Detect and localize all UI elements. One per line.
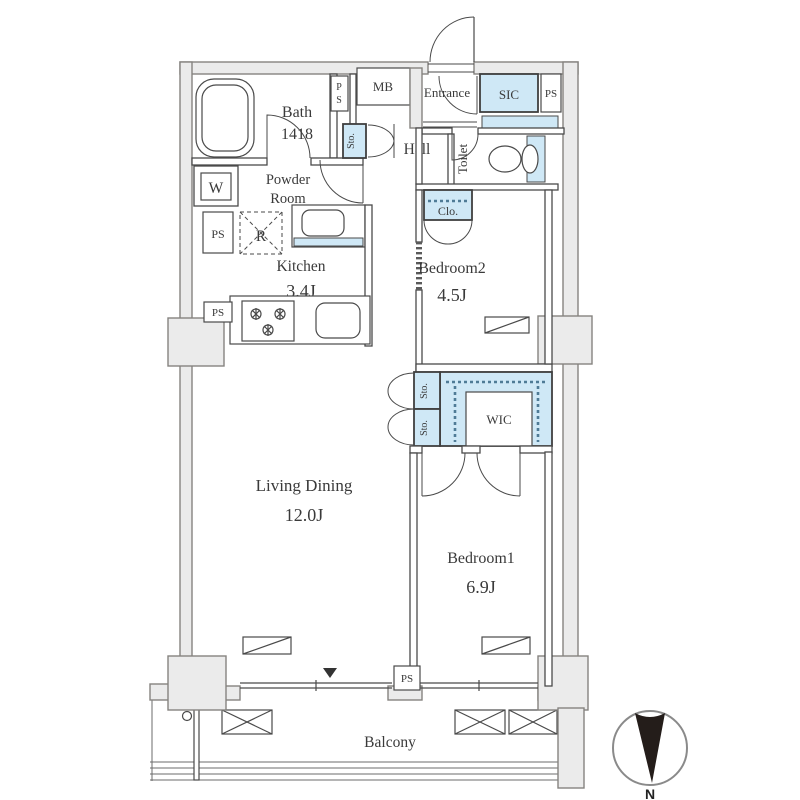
pillar-bottom-left <box>168 656 226 710</box>
kitchen-sink <box>316 303 360 338</box>
toilet-bowl <box>489 146 521 172</box>
closet-doors <box>424 220 472 244</box>
pillar-mid-left <box>168 318 224 366</box>
wic-door <box>477 453 520 496</box>
powder-room-door <box>320 160 363 203</box>
bedroom2-label: Bedroom2 <box>418 260 486 277</box>
pillar-bottom-right-ext <box>558 708 584 788</box>
bedroom1-area-label: 6.9J <box>466 577 496 597</box>
powder-room-label-1: Powder <box>266 172 310 188</box>
sto-label: Sto. <box>419 420 430 436</box>
sto-label: Sto. <box>419 383 430 399</box>
bedroom1-door <box>422 453 465 496</box>
bedroom1-label: Bedroom1 <box>447 550 515 567</box>
vanity-sink <box>302 210 344 236</box>
wall-bedroom2-bottom <box>416 364 552 372</box>
sto-label: Sto. <box>346 133 357 149</box>
wall-bedroom1-right <box>545 452 552 686</box>
ps-label: PS <box>211 227 224 241</box>
wall-ld-bedroom1 <box>410 453 417 686</box>
wall-toilet-top-a <box>422 128 452 134</box>
toilet-label: Toilet <box>455 144 470 175</box>
balcony: Balcony <box>150 700 558 781</box>
floor-plan: Balcony Bath 1418 P S MB S <box>0 0 800 800</box>
wic-area: WIC Sto. Sto. <box>388 372 552 446</box>
living-dining-label: Living Dining <box>256 476 353 495</box>
entrance-label: Entrance <box>424 85 470 100</box>
washer-label: W <box>209 180 224 197</box>
equipment-pad <box>455 710 505 734</box>
storage-bifold-doors <box>368 125 394 157</box>
mb-label: MB <box>373 79 394 94</box>
wall-entrance-left <box>410 68 422 128</box>
balcony-label: Balcony <box>364 734 416 751</box>
wall-stub-left <box>150 684 170 700</box>
wall-left <box>180 62 192 700</box>
wic-label: WIC <box>486 412 511 427</box>
wall-bedroom2-right <box>545 190 552 364</box>
wall-toilet-top-b <box>478 128 564 134</box>
floor-plan-svg: Balcony Bath 1418 P S MB S <box>0 0 800 800</box>
toilet-tank <box>522 145 538 173</box>
wall-toilet-left <box>448 134 454 190</box>
ps-label: PS <box>545 88 557 100</box>
bath-size-label: 1418 <box>281 126 313 143</box>
front-door-swing <box>430 17 474 62</box>
ac-unit-bedroom1 <box>482 637 530 654</box>
storage-bifold-doors <box>388 373 414 445</box>
vanity-front <box>294 238 363 246</box>
wall-bedroom2-left-b <box>416 290 422 372</box>
wall-hall-top <box>350 74 356 124</box>
wall-bath-bottom-a <box>192 158 267 165</box>
refrigerator-space: R <box>240 212 282 254</box>
living-dining-area-label: 12.0J <box>285 505 324 525</box>
wall-right <box>563 62 578 700</box>
bathtub-inner <box>202 85 248 151</box>
bedroom1: Bedroom1 6.9J <box>410 446 552 686</box>
ps-label: PS <box>212 307 224 319</box>
clo-label: Clo. <box>438 204 458 218</box>
bathroom: Bath 1418 P S <box>192 74 363 165</box>
powder-room: W Powder Room PS R <box>194 160 365 254</box>
drain-cap <box>183 712 192 721</box>
ps-label: PS <box>401 673 413 685</box>
equipment-pad <box>509 710 557 734</box>
toilet-room: Toilet <box>416 128 564 190</box>
closet-bedroom2: Clo. <box>424 190 472 244</box>
bath-label: Bath <box>282 104 312 121</box>
bedroom2-area-label: 4.5J <box>437 285 467 305</box>
ps-label-p: P <box>336 82 342 93</box>
ps-label-s: S <box>336 95 342 106</box>
compass: N <box>613 711 687 800</box>
north-label: N <box>645 786 655 800</box>
ac-unit-living <box>243 637 291 654</box>
wall-bath-bottom-b <box>311 158 363 165</box>
wall-bedroom1-top-b <box>462 446 480 453</box>
ac-unit-bedroom2 <box>485 317 529 333</box>
sic-label: SIC <box>499 87 519 102</box>
refrigerator-label: R <box>256 228 267 245</box>
equipment-pad <box>222 710 272 734</box>
wall-bedroom2-left-upper <box>416 128 422 184</box>
wall-bedroom2-left-a <box>416 190 422 242</box>
kitchen-label: Kitchen <box>276 258 325 275</box>
entry-marker-triangle <box>323 668 337 678</box>
wall-bedroom1-top-a <box>410 446 422 453</box>
living-dining: Living Dining 12.0J <box>243 476 353 678</box>
drain-pipe <box>194 708 199 780</box>
